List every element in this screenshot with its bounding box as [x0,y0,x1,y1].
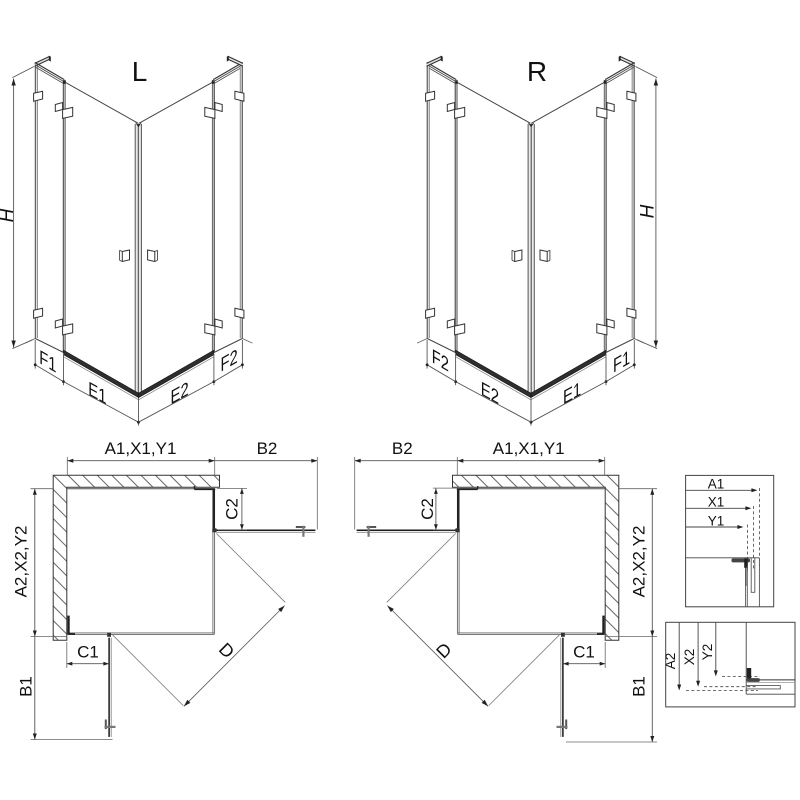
svg-text:H: H [0,208,18,222]
svg-text:X2: X2 [682,649,697,666]
svg-text:C2: C2 [418,498,437,520]
svg-text:Y2: Y2 [700,644,715,661]
svg-text:B1: B1 [17,676,36,697]
svg-text:A1,X1,Y1: A1,X1,Y1 [105,439,177,458]
svg-text:C1: C1 [573,643,595,662]
svg-text:H: H [637,204,658,218]
svg-text:B2: B2 [392,439,413,458]
svg-text:A2,X2,Y2: A2,X2,Y2 [12,526,31,598]
svg-text:L: L [132,56,148,87]
svg-text:B2: B2 [257,439,278,458]
svg-text:Y1: Y1 [708,513,725,528]
svg-text:X1: X1 [708,495,725,510]
svg-text:C1: C1 [77,643,99,662]
svg-text:A2,X2,Y2: A2,X2,Y2 [630,526,649,598]
svg-text:B1: B1 [630,676,649,697]
svg-text:A2: A2 [663,653,678,670]
svg-text:A1: A1 [708,477,725,492]
svg-text:A1,X1,Y1: A1,X1,Y1 [493,439,565,458]
svg-text:C2: C2 [223,498,242,520]
svg-text:R: R [527,56,547,87]
